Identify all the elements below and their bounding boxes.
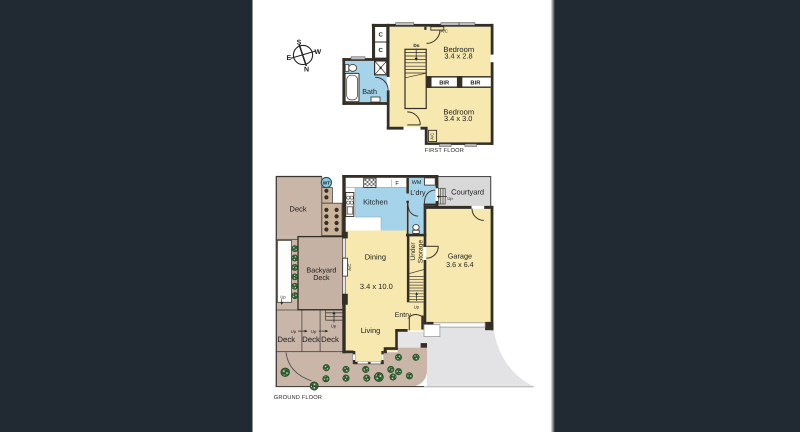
svg-text:Dining: Dining — [365, 253, 386, 262]
svg-text:Up: Up — [291, 329, 297, 334]
svg-text:Dn: Dn — [413, 43, 419, 48]
svg-text:C: C — [379, 32, 384, 39]
svg-text:BIR: BIR — [439, 80, 450, 86]
svg-text:FIRST FLOOR: FIRST FLOOR — [425, 148, 464, 154]
svg-text:Under: Under — [410, 242, 417, 261]
svg-text:Deck: Deck — [321, 335, 339, 344]
svg-text:A/C: A/C — [441, 29, 448, 34]
svg-text:Deck: Deck — [289, 204, 307, 213]
svg-text:Kitchen: Kitchen — [363, 197, 388, 206]
svg-text:Up: Up — [414, 304, 420, 309]
svg-text:W: W — [314, 49, 321, 56]
svg-text:Storage: Storage — [418, 240, 425, 264]
svg-text:A/C: A/C — [347, 264, 352, 271]
svg-text:L’dry: L’dry — [410, 188, 426, 197]
svg-text:Deck: Deck — [313, 273, 330, 282]
svg-text:Bath: Bath — [362, 87, 377, 96]
svg-text:3.4 x 10.0: 3.4 x 10.0 — [360, 282, 393, 291]
svg-text:S: S — [297, 40, 302, 47]
svg-text:F: F — [395, 181, 399, 187]
svg-text:E: E — [286, 55, 291, 62]
svg-text:Courtyard: Courtyard — [451, 188, 484, 197]
svg-text:3.4 x 2.8: 3.4 x 2.8 — [444, 52, 472, 61]
svg-text:3.6 x 6.4: 3.6 x 6.4 — [446, 260, 474, 269]
svg-text:Deck: Deck — [302, 335, 320, 344]
svg-text:Up: Up — [280, 295, 286, 300]
svg-text:3.4 x 3.0: 3.4 x 3.0 — [444, 114, 472, 123]
svg-text:GROUND FLOOR: GROUND FLOOR — [274, 395, 322, 401]
svg-text:Living: Living — [361, 326, 381, 335]
svg-text:C: C — [379, 47, 384, 54]
svg-text:Up: Up — [447, 196, 453, 201]
svg-text:WT: WT — [323, 181, 330, 186]
svg-text:A/C: A/C — [430, 133, 435, 140]
svg-text:Deck: Deck — [277, 335, 295, 344]
svg-text:N: N — [304, 67, 309, 74]
svg-text:WM: WM — [412, 180, 422, 186]
svg-text:Up: Up — [331, 324, 337, 329]
svg-text:Up: Up — [311, 329, 317, 334]
svg-text:BIR: BIR — [470, 80, 481, 86]
